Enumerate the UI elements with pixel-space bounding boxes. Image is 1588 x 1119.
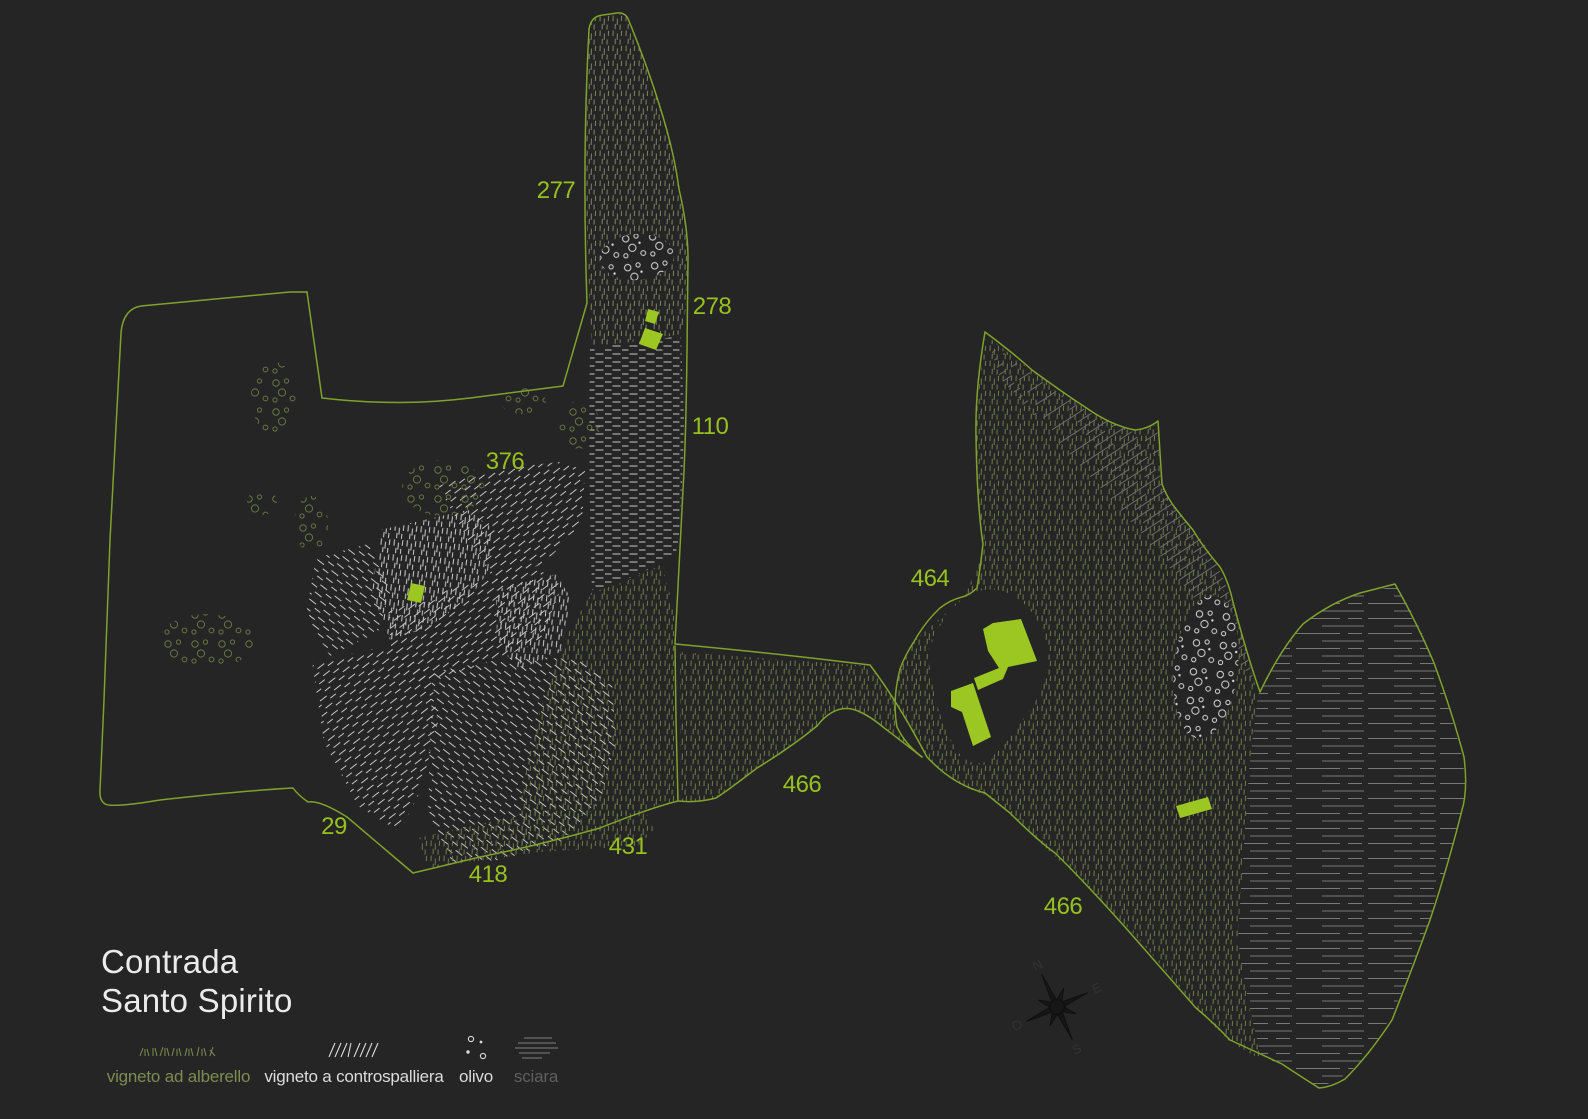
map-title-line1: Contrada [101,942,293,981]
contrada-map-page: N E S O 277 278 110 376 464 466 29 431 4… [0,0,1588,1119]
compass-north-label: N [1030,956,1045,974]
parcel-label-110: 110 [692,413,729,440]
parcel-label-376: 376 [486,448,525,475]
legend: vigneto ad alberello vigneto a controspa… [0,1034,1588,1104]
parcel-label-277: 277 [537,177,576,204]
parcel-label-466-west: 466 [783,771,822,798]
hatch-patch-finger-top [586,14,687,346]
parcel-label-431: 431 [609,833,648,860]
olive-dots-icon [462,1034,490,1062]
legend-label-alberello: vigneto ad alberello [107,1067,250,1086]
hatch-patch-w6 [312,646,438,832]
sciara-lines-icon [512,1034,560,1062]
legend-item-olivo: olivo [444,1034,508,1087]
legend-label-sciara: sciara [514,1067,558,1086]
legend-item-alberello: vigneto ad alberello [96,1034,261,1087]
legend-label-controspalliera: vigneto a controspalliera [264,1067,443,1086]
legend-item-controspalliera: vigneto a controspalliera [258,1034,450,1087]
parcel-label-466-east: 466 [1044,893,1083,920]
compass-east-label: E [1090,979,1104,996]
parcel-label-418: 418 [469,861,508,888]
compass-west-label: O [1009,1016,1025,1034]
alberello-hatch-icon [136,1034,222,1062]
parcel-label-29: 29 [321,813,347,840]
parcel-label-278: 278 [693,293,732,320]
legend-label-olivo: olivo [459,1067,493,1086]
controspalliera-hatch-icon [327,1034,381,1062]
parcel-label-464: 464 [911,565,950,592]
legend-item-sciara: sciara [502,1034,570,1087]
map-title: Contrada Santo Spirito [101,942,293,1020]
map-title-line2: Santo Spirito [101,981,293,1020]
hatch-patch-sciara-lobe [1238,586,1465,1087]
parcel-fill-patches [159,14,1465,1087]
hatch-patch-finger-mid [589,336,684,590]
